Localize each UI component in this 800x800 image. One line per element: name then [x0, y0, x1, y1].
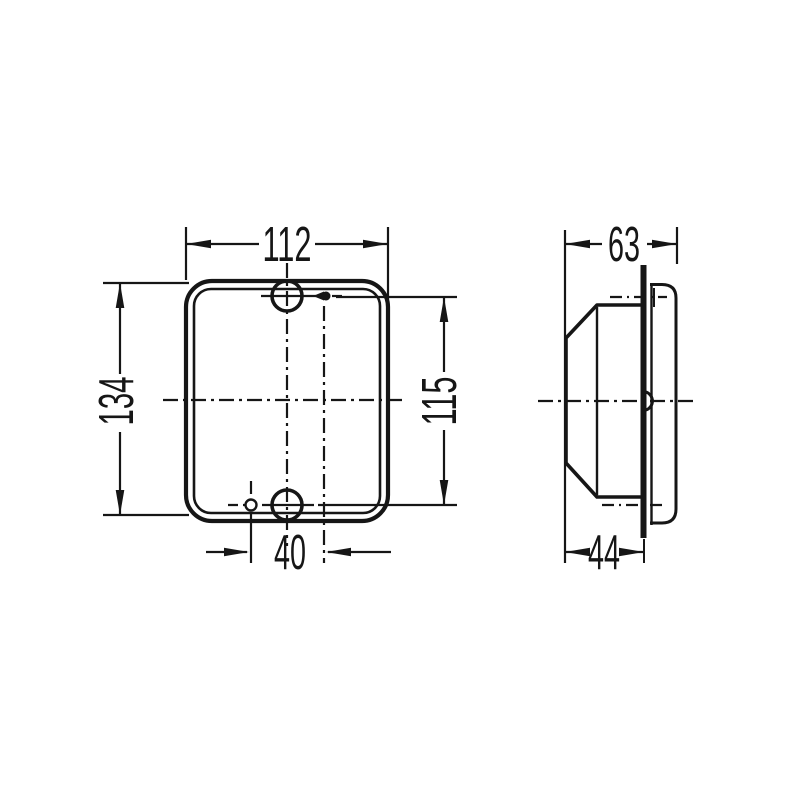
arrow-134-bottom — [116, 490, 125, 515]
arrow-112-left — [186, 240, 211, 249]
dim-label-height: 134 — [90, 377, 144, 426]
arrow-63-left — [565, 240, 590, 249]
arrow-40-left — [224, 548, 249, 557]
dim-label-depth-total: 63 — [608, 218, 640, 272]
fastener-symbol — [313, 292, 331, 301]
arrow-115-bottom — [440, 480, 449, 505]
arrow-44-right — [619, 548, 644, 557]
arrow-40-right — [326, 548, 351, 557]
arrow-134-top — [116, 283, 125, 308]
arrow-115-top — [440, 297, 449, 322]
arrow-44-left — [565, 548, 590, 557]
technical-drawing-canvas: 112 134 115 40 63 44 — [0, 0, 800, 800]
arrow-112-right — [363, 240, 388, 249]
arrow-63-right — [652, 240, 677, 249]
side-view — [538, 227, 694, 563]
front-view — [103, 227, 457, 563]
dim-label-hole-pitch-vertical: 115 — [413, 377, 467, 426]
dim-label-width: 112 — [263, 218, 312, 272]
lamp-dimension-drawing: 112 134 115 40 63 44 — [0, 0, 800, 800]
dim-label-hole-pitch-horizontal: 40 — [274, 526, 306, 580]
lens-profile — [650, 285, 676, 524]
locating-pin-circle — [246, 500, 257, 511]
dim-label-depth-mounting: 44 — [588, 526, 620, 580]
